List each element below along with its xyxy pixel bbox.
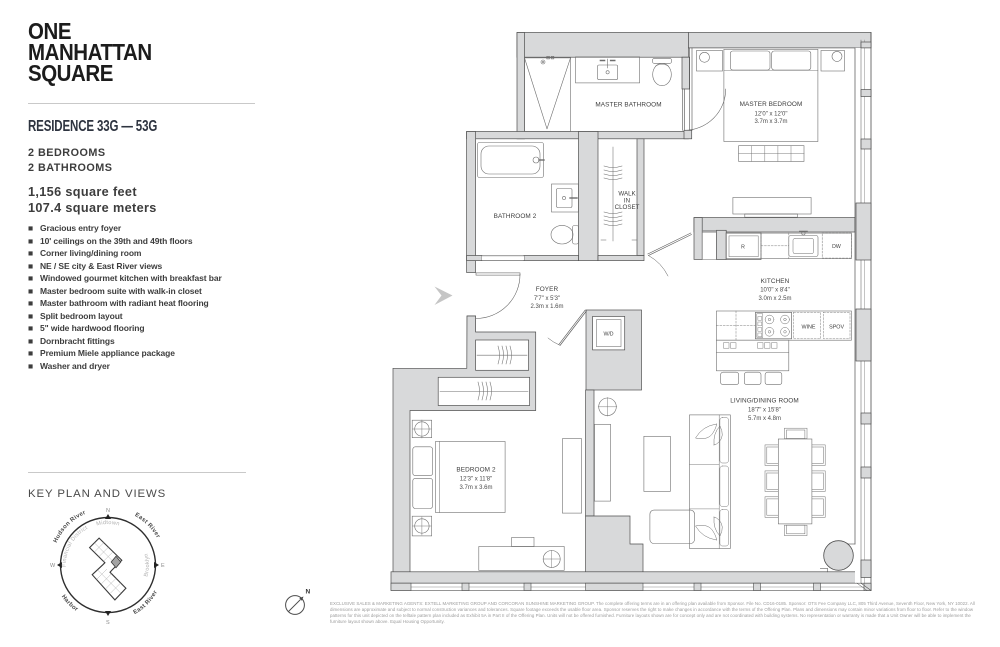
svg-text:S: S — [106, 620, 110, 626]
svg-text:R: R — [741, 244, 745, 250]
svg-text:KITCHEN: KITCHEN — [761, 278, 790, 285]
svg-text:BEDROOM 2: BEDROOM 2 — [456, 467, 496, 474]
svg-text:N: N — [106, 508, 110, 514]
svg-text:Hudson River: Hudson River — [53, 510, 87, 544]
svg-text:Brooklyn: Brooklyn — [143, 553, 151, 578]
svg-text:DW: DW — [832, 244, 841, 250]
svg-text:2.3m x 1.6m: 2.3m x 1.6m — [530, 304, 563, 310]
svg-text:12'0" x 12'0": 12'0" x 12'0" — [755, 112, 788, 118]
svg-text:5.7m x 4.8m: 5.7m x 4.8m — [748, 416, 781, 422]
svg-text:N: N — [306, 589, 311, 596]
svg-text:10'0" x 8'4": 10'0" x 8'4" — [760, 288, 790, 294]
svg-text:MASTER BEDROOM: MASTER BEDROOM — [740, 101, 803, 108]
svg-text:W/D: W/D — [603, 332, 613, 338]
svg-text:LIVING/DINING ROOM: LIVING/DINING ROOM — [730, 397, 799, 404]
svg-text:7'7" x 5'3": 7'7" x 5'3" — [534, 296, 560, 302]
svg-text:Midtown: Midtown — [96, 520, 121, 528]
svg-text:FOYER: FOYER — [536, 286, 559, 293]
svg-text:18'7" x 15'8": 18'7" x 15'8" — [748, 408, 781, 414]
svg-text:BATHROOM 2: BATHROOM 2 — [494, 213, 537, 220]
svg-text:3.7m x 3.7m: 3.7m x 3.7m — [754, 119, 787, 125]
svg-text:3.0m x 2.5m: 3.0m x 2.5m — [758, 296, 791, 302]
svg-text:CLOSET: CLOSET — [615, 204, 640, 211]
svg-text:MASTER BATHROOM: MASTER BATHROOM — [595, 101, 661, 108]
svg-text:W: W — [50, 563, 56, 569]
svg-text:WINE: WINE — [801, 325, 815, 331]
svg-text:East River: East River — [134, 512, 161, 539]
svg-text:E: E — [161, 563, 165, 569]
svg-text:Harbor: Harbor — [60, 594, 79, 613]
svg-text:12'3" x 11'8": 12'3" x 11'8" — [460, 477, 492, 483]
svg-text:3.7m x 3.6m: 3.7m x 3.6m — [459, 485, 492, 491]
svg-text:SPOV: SPOV — [829, 325, 844, 331]
